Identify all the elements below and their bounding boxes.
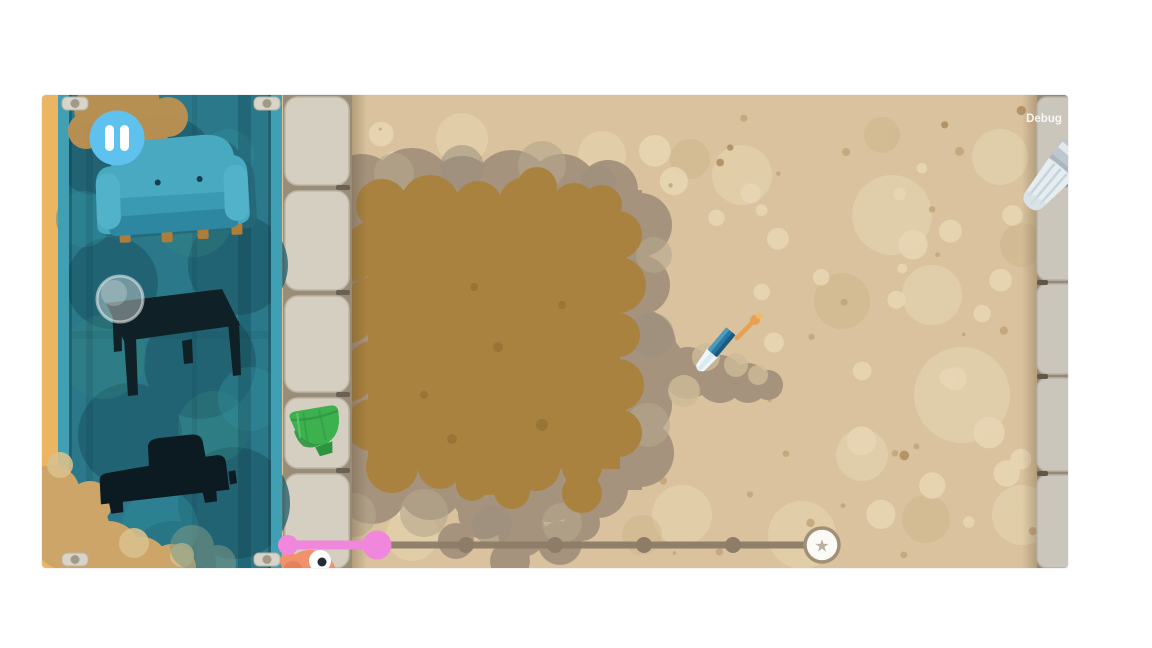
- hole-interior[interactable]: [320, 167, 646, 513]
- progress-stop: [636, 537, 652, 553]
- stone-wall-left: [283, 95, 352, 568]
- progress-stop: [458, 537, 474, 553]
- wall-shadow-left: [352, 95, 367, 568]
- debug-label[interactable]: Debug: [1026, 113, 1062, 125]
- progress-stop: [547, 537, 563, 553]
- progress-stop: [363, 531, 392, 560]
- pause-button[interactable]: [90, 111, 145, 166]
- lens-circle: [97, 276, 143, 322]
- wall-shadow-right: [1022, 95, 1037, 568]
- progress-goal: ★: [805, 528, 839, 562]
- progress-stop: [725, 537, 741, 553]
- progress-stop: [278, 535, 298, 555]
- goal-star-icon: ★: [814, 537, 829, 556]
- game-screen: ★: [42, 95, 1068, 568]
- desktop-background: ★: [0, 0, 1152, 648]
